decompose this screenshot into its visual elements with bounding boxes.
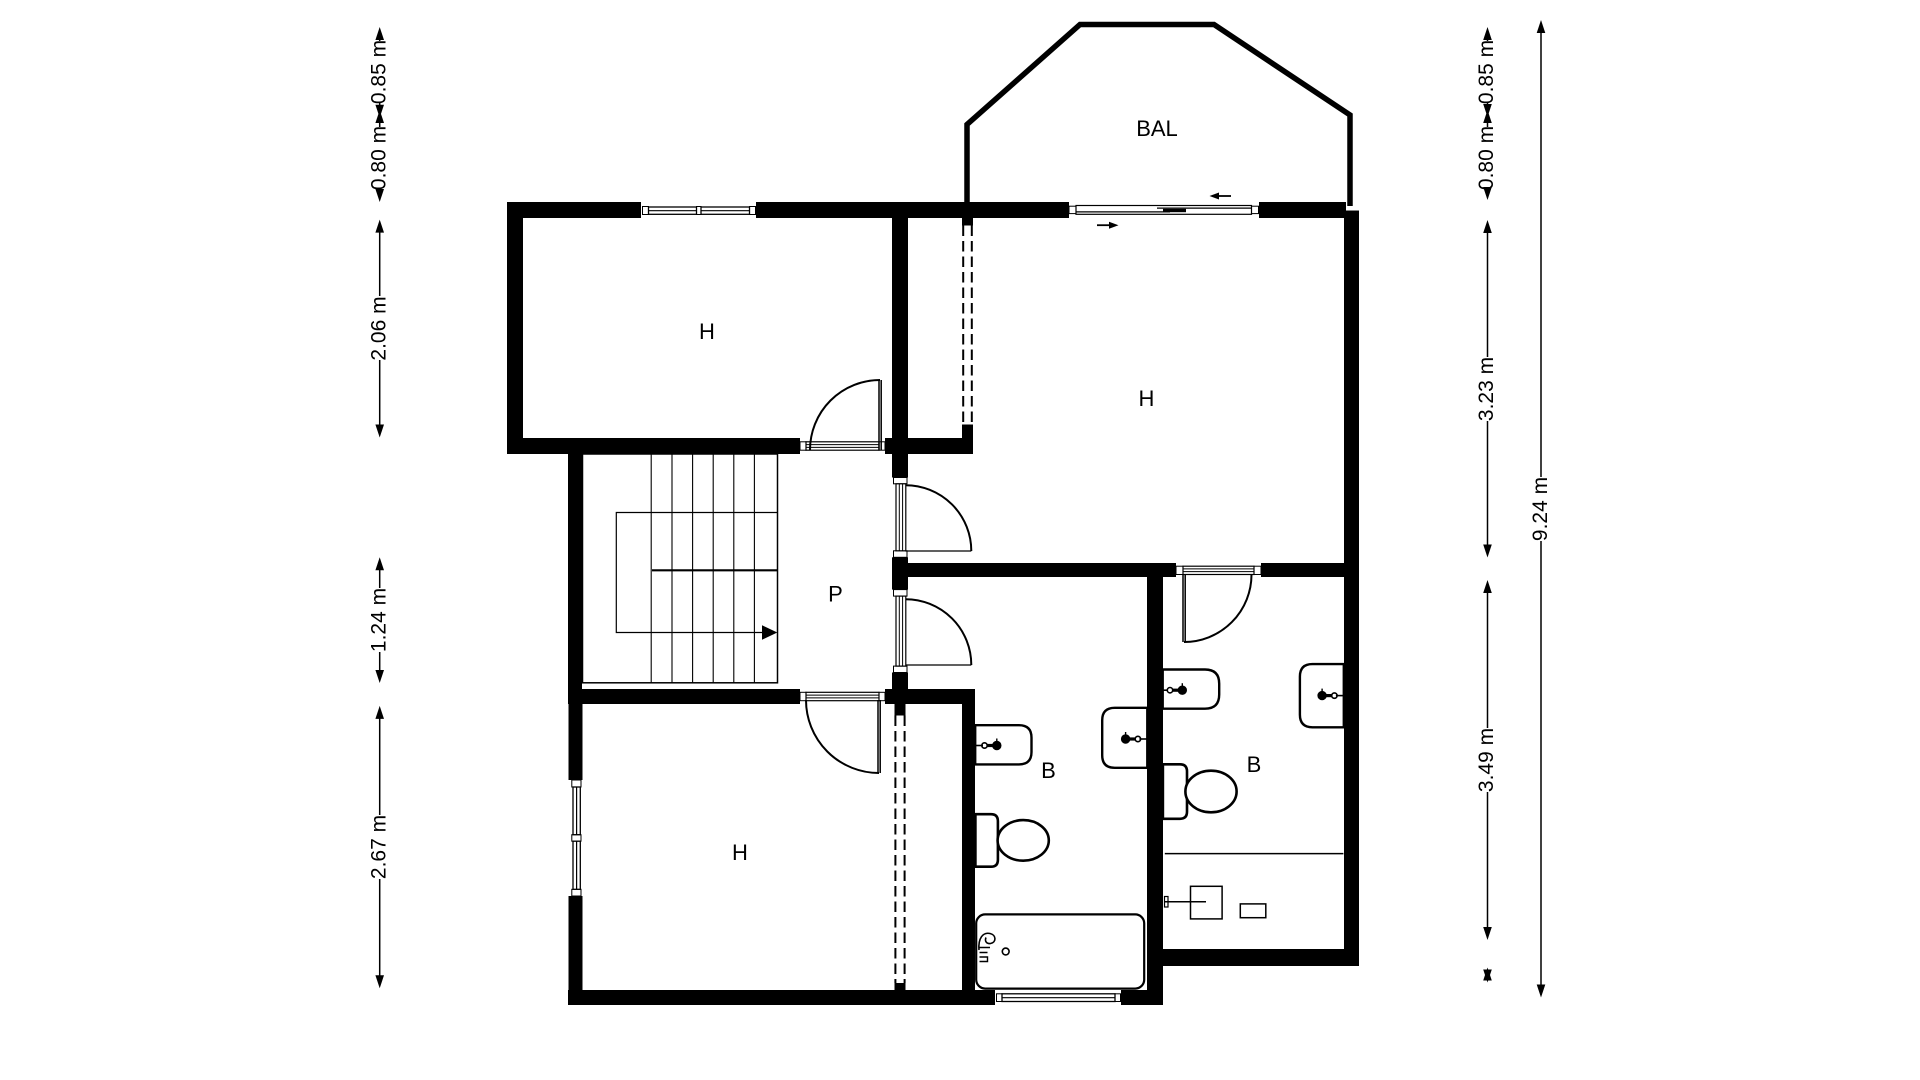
svg-text:2.06 m: 2.06 m — [367, 296, 390, 360]
svg-text:BAL: BAL — [1136, 116, 1178, 141]
svg-text:H: H — [1139, 386, 1155, 411]
svg-text:B: B — [1247, 752, 1262, 777]
svg-text:H: H — [699, 319, 715, 344]
svg-text:3.23 m: 3.23 m — [1475, 357, 1498, 421]
svg-text:0.85 m: 0.85 m — [367, 40, 390, 104]
svg-text:H: H — [732, 840, 748, 865]
svg-text:B: B — [1041, 758, 1056, 783]
svg-text:9.24 m: 9.24 m — [1529, 477, 1552, 541]
svg-text:1.24 m: 1.24 m — [367, 588, 390, 652]
svg-text:0.80 m: 0.80 m — [1475, 126, 1498, 190]
svg-text:0.80 m: 0.80 m — [367, 126, 390, 190]
svg-text:P: P — [828, 582, 843, 607]
svg-text:2.67 m: 2.67 m — [367, 815, 390, 879]
svg-text:3.49 m: 3.49 m — [1475, 728, 1498, 792]
svg-text:0.85 m: 0.85 m — [1475, 40, 1498, 104]
